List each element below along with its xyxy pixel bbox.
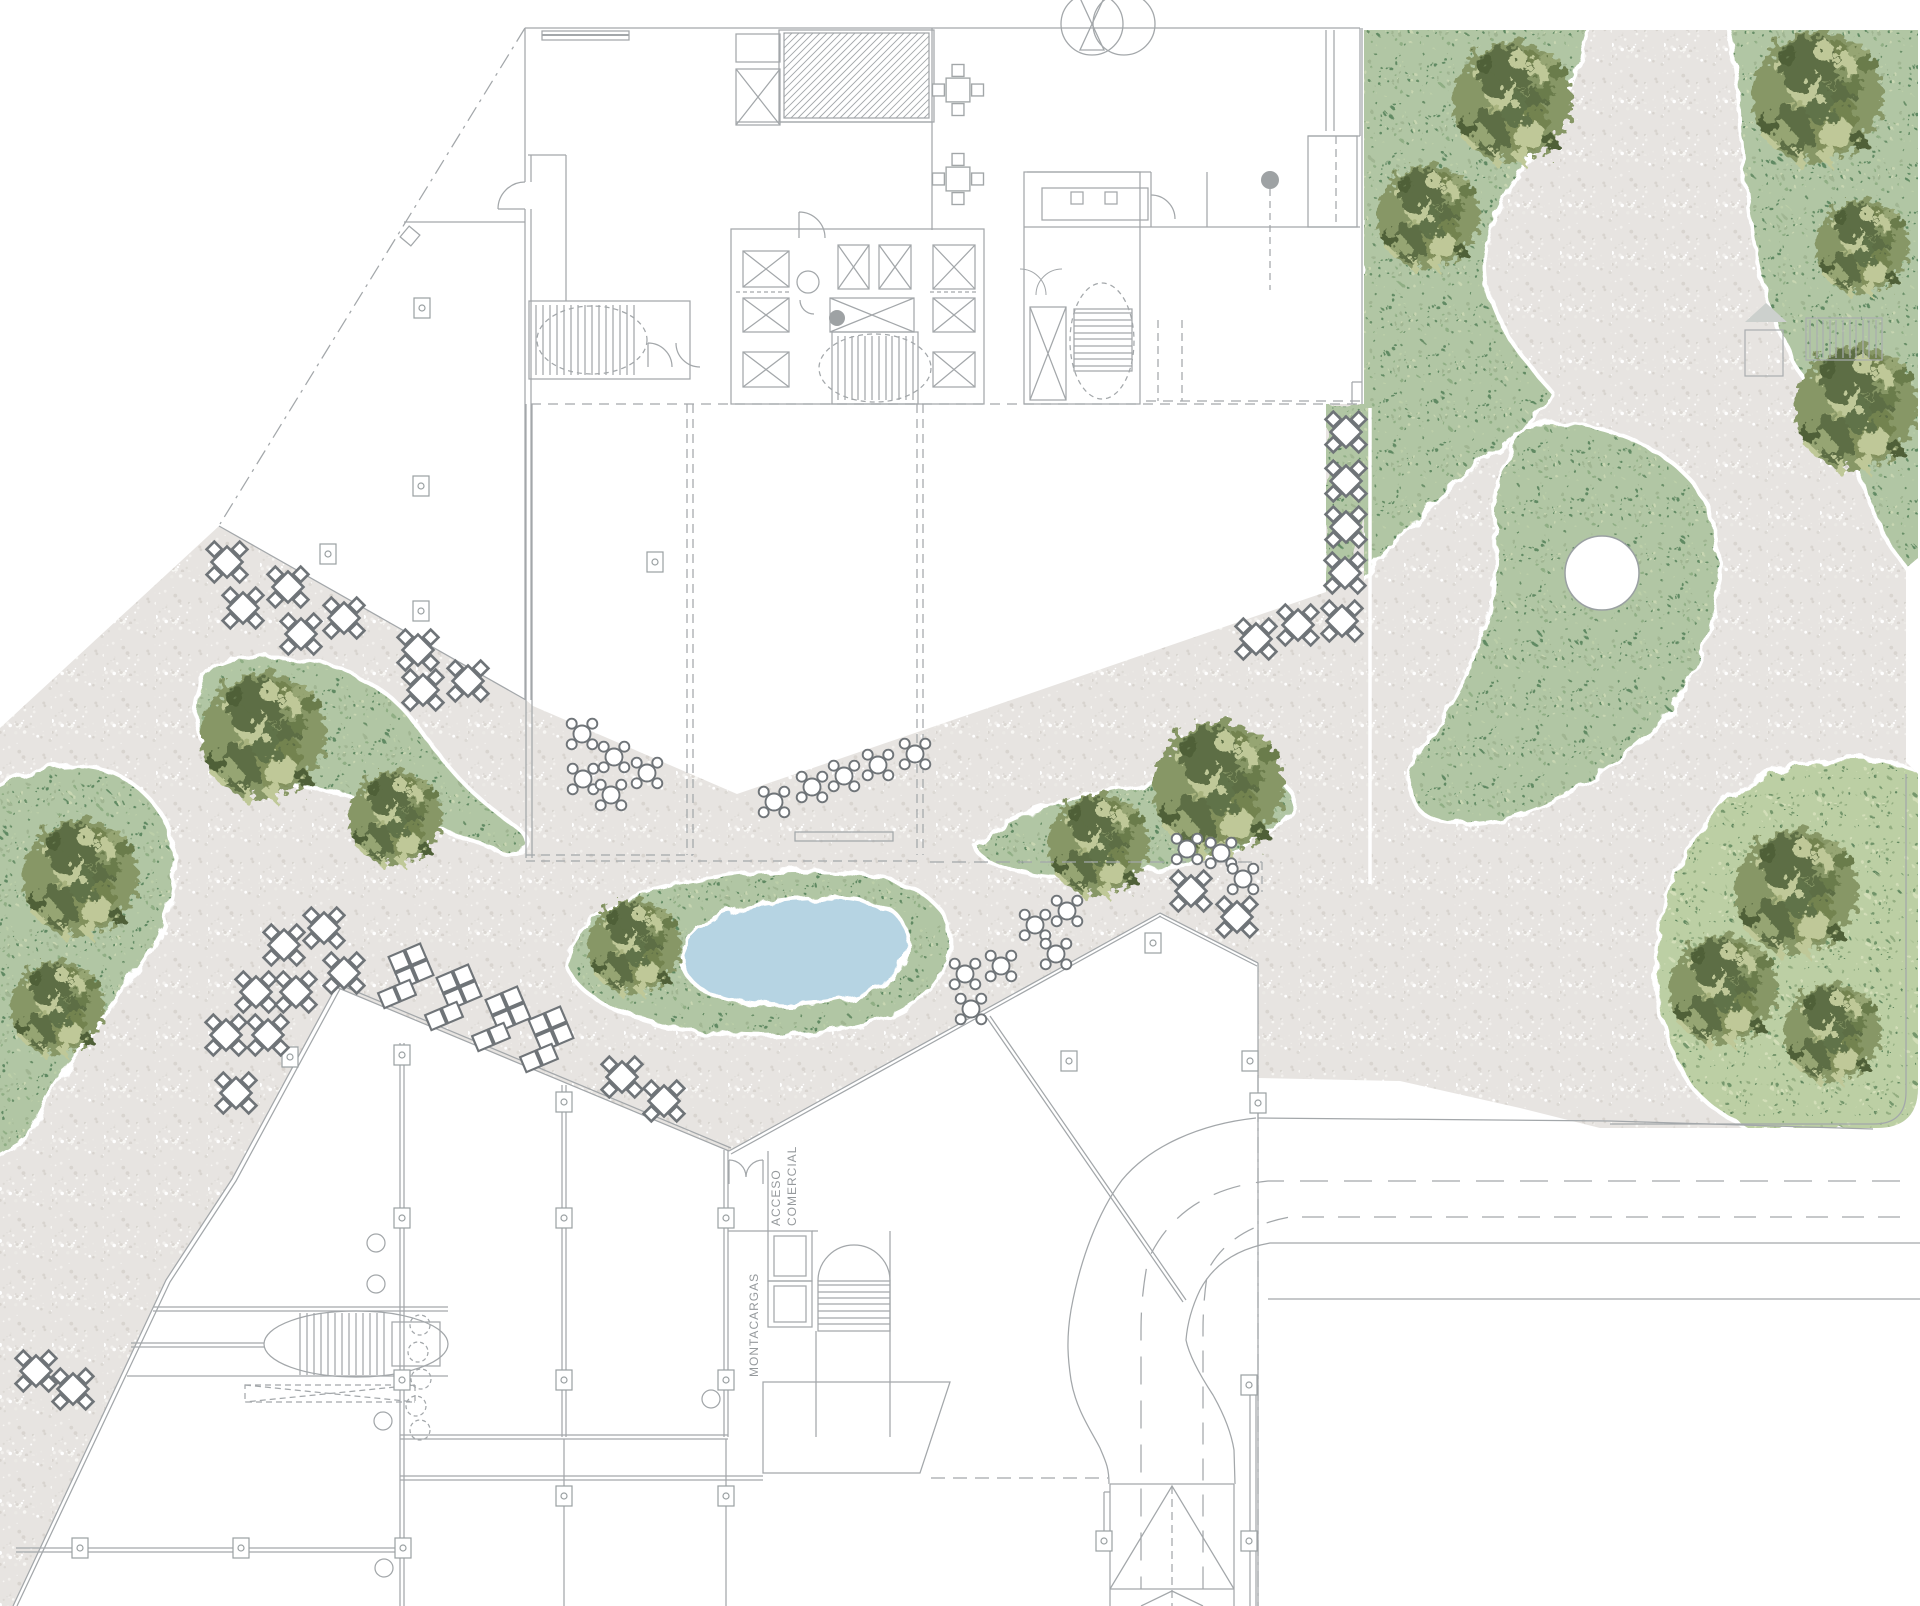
- svg-text:ACCESO: ACCESO: [769, 1169, 783, 1226]
- svg-text:MONTACARGAS: MONTACARGAS: [747, 1273, 761, 1377]
- svg-text:COMERCIAL: COMERCIAL: [785, 1146, 799, 1226]
